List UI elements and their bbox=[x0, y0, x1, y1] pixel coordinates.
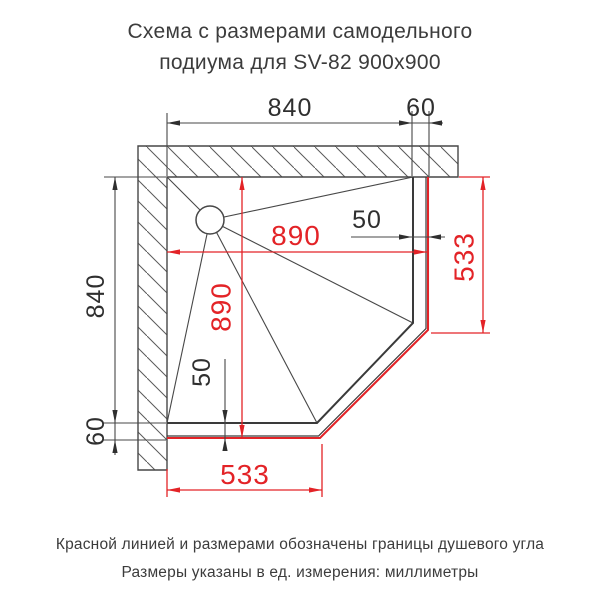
dim-top-60-label: 60 bbox=[406, 94, 436, 122]
dim-gap-right-50: 50 bbox=[351, 206, 445, 240]
dim-left-60-label: 60 bbox=[82, 416, 110, 446]
dim-side-bottom-533: 533 bbox=[167, 444, 322, 497]
dim-shower-height-label: 890 bbox=[206, 282, 237, 332]
dim-gap-bottom-label: 50 bbox=[188, 357, 216, 387]
dim-gap-bottom-50: 50 bbox=[188, 357, 228, 451]
dim-top-840-label: 840 bbox=[268, 94, 313, 122]
dim-side-right-label: 533 bbox=[449, 232, 480, 282]
dim-side-right-533: 533 bbox=[431, 177, 490, 333]
wall-hatching bbox=[138, 146, 458, 470]
legend-note-line2: Размеры указаны в ед. измерения: миллиме… bbox=[0, 559, 600, 587]
dim-left-840-label: 840 bbox=[82, 274, 110, 319]
dim-side-bottom-label: 533 bbox=[220, 459, 270, 490]
legend-note-line1: Красной линией и размерами обозначены гр… bbox=[0, 531, 600, 559]
podium-scheme-drawing: 840 60 840 60 890 890 bbox=[0, 0, 600, 600]
dim-shower-width-label: 890 bbox=[271, 220, 321, 251]
legend-note: Красной линией и размерами обозначены гр… bbox=[0, 531, 600, 587]
drain-circle bbox=[196, 206, 224, 234]
dim-gap-right-label: 50 bbox=[352, 206, 382, 234]
diagram-page: Схема с размерами самодельного подиума д… bbox=[0, 0, 600, 600]
